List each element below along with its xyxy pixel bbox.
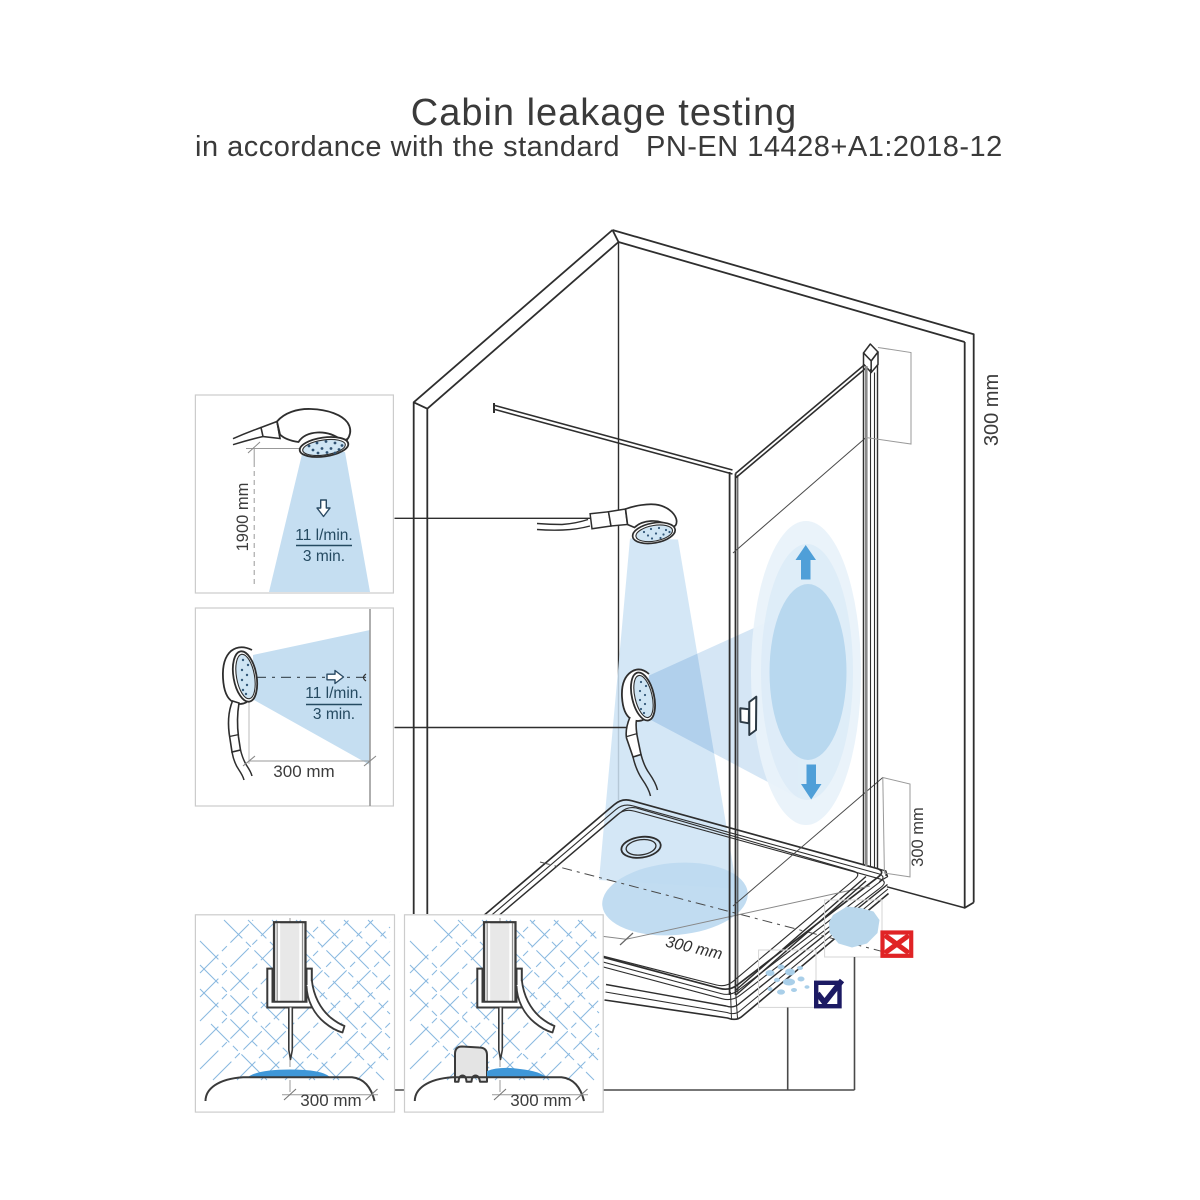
svg-text:in accordance with the standar: in accordance with the standardPN-EN 144… xyxy=(195,131,1003,163)
svg-text:300 mm: 300 mm xyxy=(273,762,334,781)
svg-text:3 min.: 3 min. xyxy=(313,706,355,723)
svg-text:3 min.: 3 min. xyxy=(303,548,345,565)
svg-text:300 mm: 300 mm xyxy=(909,807,927,867)
svg-text:1900 mm: 1900 mm xyxy=(234,483,252,552)
svg-text:11 l/min.: 11 l/min. xyxy=(305,685,362,702)
svg-text:300 mm: 300 mm xyxy=(300,1091,361,1110)
svg-text:300 mm: 300 mm xyxy=(510,1091,571,1110)
svg-text:Cabin leakage testing: Cabin leakage testing xyxy=(411,92,797,134)
svg-text:300 mm: 300 mm xyxy=(981,374,1003,446)
svg-text:11 l/min.: 11 l/min. xyxy=(295,527,352,544)
